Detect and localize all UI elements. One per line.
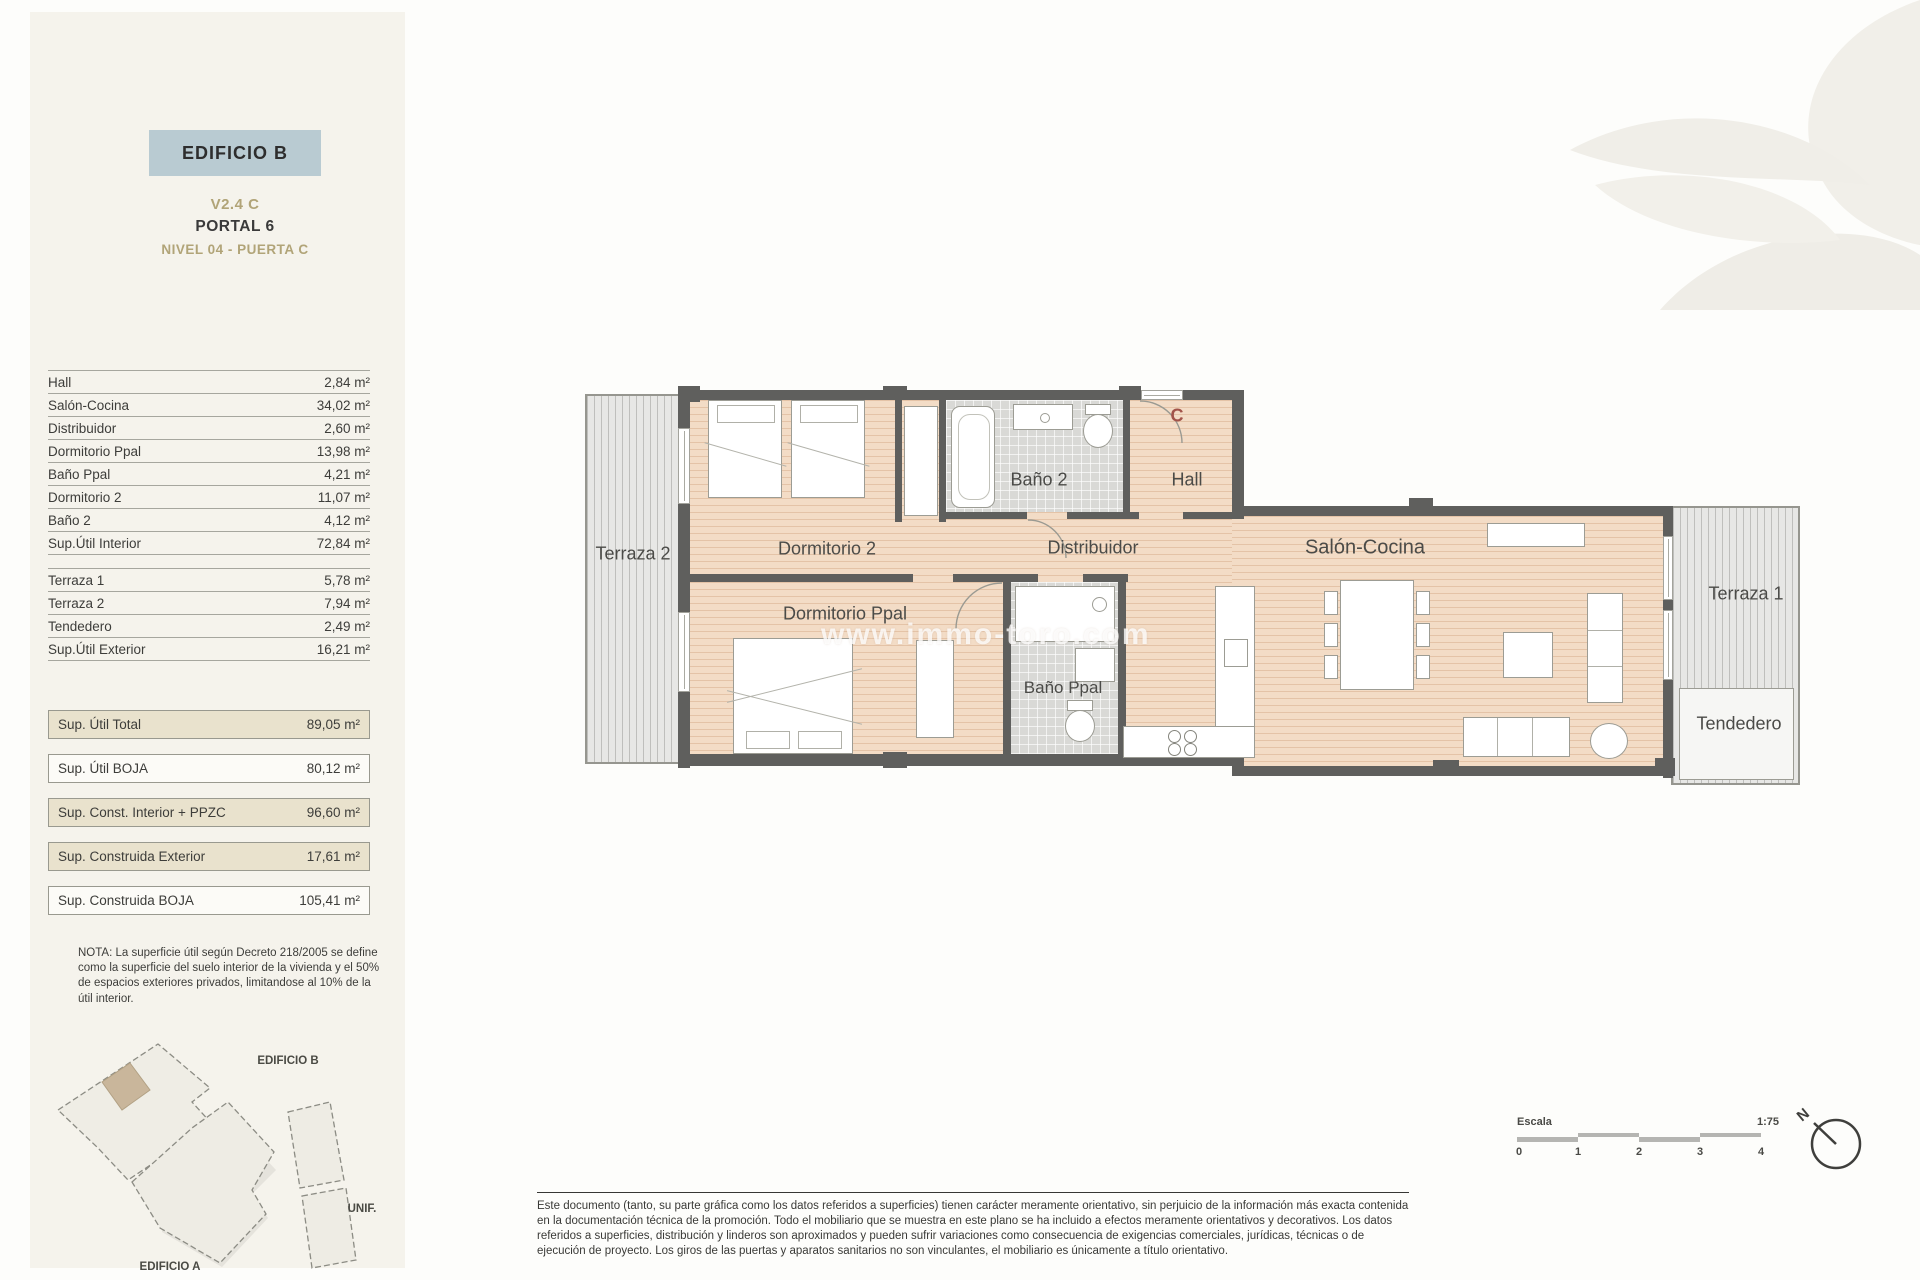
pillow: [717, 405, 775, 423]
wall: [1003, 582, 1011, 754]
building-badge: EDIFICIO B: [149, 130, 321, 176]
table-row: Dormitorio Ppal13,98 m²: [48, 439, 370, 462]
pillar: [1119, 386, 1141, 399]
scale-segments: 0 1 2 3 4: [1517, 1132, 1779, 1144]
scale-tick: 3: [1697, 1146, 1703, 1158]
wardrobe: [904, 406, 938, 516]
toilet: [1065, 710, 1095, 742]
wall: [1183, 512, 1244, 519]
total-box: Sup. Const. Interior + PPZC96,60 m²: [48, 798, 370, 827]
wall: [953, 574, 1038, 582]
chair: [1416, 623, 1430, 647]
chaise-lounge: [1587, 593, 1623, 703]
scale-label: Escala: [1517, 1116, 1552, 1128]
total-label: Sup. Const. Interior + PPZC: [58, 805, 226, 820]
room-label: Terraza 1: [1708, 584, 1783, 605]
pillar: [883, 386, 907, 399]
row-label: Tendedero: [48, 619, 112, 634]
unit-code: V2.4 C: [85, 196, 385, 213]
sink-basin: [1040, 413, 1050, 423]
toilet-tank: [1067, 700, 1093, 711]
kitchen-sink: [1224, 639, 1248, 667]
row-value: 34,02 m²: [317, 398, 370, 413]
burner: [1184, 743, 1197, 756]
room-label: Terraza 2: [595, 544, 670, 565]
total-value: 80,12 m²: [307, 761, 360, 776]
row-label: Terraza 2: [48, 596, 104, 611]
sink: [1075, 648, 1115, 682]
burner: [1184, 730, 1197, 743]
row-label: Distribuidor: [48, 421, 116, 436]
toilet: [1083, 414, 1113, 448]
floorplan-sheet: EDIFICIO B V2.4 C PORTAL 6 NIVEL 04 - PU…: [0, 0, 1920, 1280]
row-label: Baño Ppal: [48, 467, 110, 482]
disclaimer-block: Este documento (tanto, su parte gráfica …: [537, 1192, 1409, 1259]
total-label: Sup. Útil BOJA: [58, 761, 148, 776]
row-value: 4,12 m²: [324, 513, 370, 528]
row-value: 16,21 m²: [317, 642, 370, 657]
info-sidebar: EDIFICIO B V2.4 C PORTAL 6 NIVEL 04 - PU…: [30, 12, 405, 1268]
bathtub-inner: [958, 414, 990, 500]
table-row: Baño Ppal4,21 m²: [48, 462, 370, 485]
level-label: NIVEL 04 - PUERTA C: [85, 242, 385, 257]
scale-tick: 4: [1758, 1146, 1764, 1158]
wall: [1123, 400, 1130, 518]
coffee-table: [1503, 632, 1553, 678]
total-label: Sup. Útil Total: [58, 717, 141, 732]
site-plan: EDIFICIO B UNIF. EDIFICIO A: [40, 1030, 385, 1275]
row-label: Sup.Útil Interior: [48, 536, 141, 551]
table-row: Salón-Cocina34,02 m²: [48, 393, 370, 416]
row-value: 11,07 m²: [318, 490, 370, 505]
burner: [1168, 730, 1181, 743]
disclaimer-text: Este documento (tanto, su parte gráfica …: [537, 1199, 1409, 1259]
wardrobe: [916, 640, 954, 738]
row-value: 5,78 m²: [324, 573, 370, 588]
row-value: 72,84 m²: [317, 536, 370, 551]
toilet-tank: [1085, 404, 1111, 415]
pillar: [1433, 760, 1459, 776]
total-value: 105,41 m²: [299, 893, 360, 908]
legal-note: NOTA: La superficie útil según Decreto 2…: [78, 946, 383, 1007]
room-label: Baño 2: [1010, 470, 1067, 491]
unif-outline-2: [302, 1188, 356, 1268]
room-label: Salón-Cocina: [1305, 537, 1425, 560]
single-bed: [791, 400, 865, 498]
interior-areas-table: Hall2,84 m² Salón-Cocina34,02 m² Distrib…: [48, 370, 370, 555]
table-row: Terraza 15,78 m²: [48, 568, 370, 591]
table-row: Hall2,84 m²: [48, 370, 370, 393]
wall: [690, 574, 913, 582]
room-label: Distribuidor: [1047, 538, 1138, 559]
scale-tick: 2: [1636, 1146, 1642, 1158]
pillar: [1409, 498, 1433, 510]
pillar: [1655, 758, 1675, 776]
single-bed: [708, 400, 782, 498]
room-label: Hall: [1171, 470, 1202, 491]
wall: [1232, 390, 1244, 512]
table-row: Sup.Útil Exterior16,21 m²: [48, 637, 370, 660]
site-label-edificio-b: EDIFICIO B: [257, 1055, 318, 1067]
totals-summary: Sup. Útil Total89,05 m² Sup. Útil BOJA80…: [48, 710, 370, 930]
table-row: Dormitorio 211,07 m²: [48, 485, 370, 508]
table-row: Distribuidor2,60 m²: [48, 416, 370, 439]
burner: [1168, 743, 1181, 756]
wall: [1083, 574, 1128, 582]
row-label: Dormitorio Ppal: [48, 444, 141, 459]
row-value: 13,98 m²: [317, 444, 370, 459]
apartment-floor-plan: Terraza 2 Dormitorio 2 Baño 2 Hall Distr…: [583, 386, 1803, 790]
row-label: Dormitorio 2: [48, 490, 122, 505]
unif-outline-1: [288, 1102, 344, 1188]
terraza2-deck: [585, 394, 690, 764]
site-label-unif: UNIF.: [348, 1203, 377, 1215]
window: [678, 428, 690, 504]
chair: [1324, 655, 1338, 679]
wall: [895, 400, 902, 522]
table-row: Terraza 27,94 m²: [48, 591, 370, 614]
pillow: [746, 731, 790, 749]
decorative-leaf-graphic: [1540, 0, 1920, 310]
room-label: Tendedero: [1696, 714, 1781, 735]
wall: [939, 400, 946, 522]
window: [678, 612, 690, 692]
north-letter: N: [1794, 1105, 1813, 1125]
row-label: Hall: [48, 375, 71, 390]
entry-door-opening: [1141, 390, 1183, 400]
portal-label: PORTAL 6: [85, 218, 385, 236]
scale-bar: Escala 1:75 0 1 2 3 4: [1517, 1116, 1779, 1144]
watermark-text: www.immo-toro.com: [821, 618, 1151, 652]
total-box: Sup. Útil BOJA80,12 m²: [48, 754, 370, 783]
site-label-edificio-a: EDIFICIO A: [140, 1261, 201, 1273]
dining-table: [1340, 580, 1414, 690]
total-value: 96,60 m²: [307, 805, 360, 820]
total-box: Sup. Construida Exterior17,61 m²: [48, 842, 370, 871]
row-value: 2,60 m²: [324, 421, 370, 436]
double-bed: [733, 638, 853, 754]
row-label: Sup.Útil Exterior: [48, 642, 146, 657]
north-arrow: N: [1788, 1100, 1878, 1190]
row-value: 4,21 m²: [324, 467, 370, 482]
side-table: [1590, 723, 1628, 759]
total-label: Sup. Construida Exterior: [58, 849, 205, 864]
entry-door-letter: C: [1171, 406, 1184, 427]
scale-tick: 0: [1516, 1146, 1522, 1158]
pillow: [798, 731, 842, 749]
row-label: Baño 2: [48, 513, 91, 528]
sink: [1013, 404, 1073, 430]
row-value: 2,49 m²: [324, 619, 370, 634]
window: [1663, 610, 1673, 680]
pillar: [678, 386, 700, 402]
total-box: Sup. Útil Total89,05 m²: [48, 710, 370, 739]
chair: [1416, 591, 1430, 615]
chair: [1324, 623, 1338, 647]
row-value: 2,84 m²: [324, 375, 370, 390]
table-row: Tendedero2,49 m²: [48, 614, 370, 637]
row-value: 7,94 m²: [324, 596, 370, 611]
plan-header: EDIFICIO B V2.4 C PORTAL 6 NIVEL 04 - PU…: [85, 130, 385, 257]
chair: [1416, 655, 1430, 679]
bathtub: [951, 406, 995, 508]
total-value: 17,61 m²: [307, 849, 360, 864]
wall: [939, 512, 1027, 519]
shower-head: [1092, 597, 1107, 612]
total-value: 89,05 m²: [307, 717, 360, 732]
total-label: Sup. Construida BOJA: [58, 893, 194, 908]
total-box: Sup. Construida BOJA105,41 m²: [48, 886, 370, 915]
window: [1663, 536, 1673, 600]
pillar: [883, 752, 907, 768]
room-label: Dormitorio 2: [778, 539, 876, 560]
scale-ratio: 1:75: [1757, 1116, 1779, 1128]
room-label: Baño Ppal: [1024, 678, 1102, 698]
row-label: Salón-Cocina: [48, 398, 129, 413]
exterior-areas-table: Terraza 15,78 m² Terraza 27,94 m² Tended…: [48, 568, 370, 661]
wall: [1067, 512, 1139, 519]
sofa: [1463, 717, 1570, 757]
row-label: Terraza 1: [48, 573, 104, 588]
wall-cabinet: [1487, 523, 1585, 547]
table-row: Sup.Útil Interior72,84 m²: [48, 531, 370, 554]
pillow: [800, 405, 858, 423]
scale-tick: 1: [1575, 1146, 1581, 1158]
table-row: Baño 24,12 m²: [48, 508, 370, 531]
wall: [1232, 506, 1673, 516]
chair: [1324, 591, 1338, 615]
